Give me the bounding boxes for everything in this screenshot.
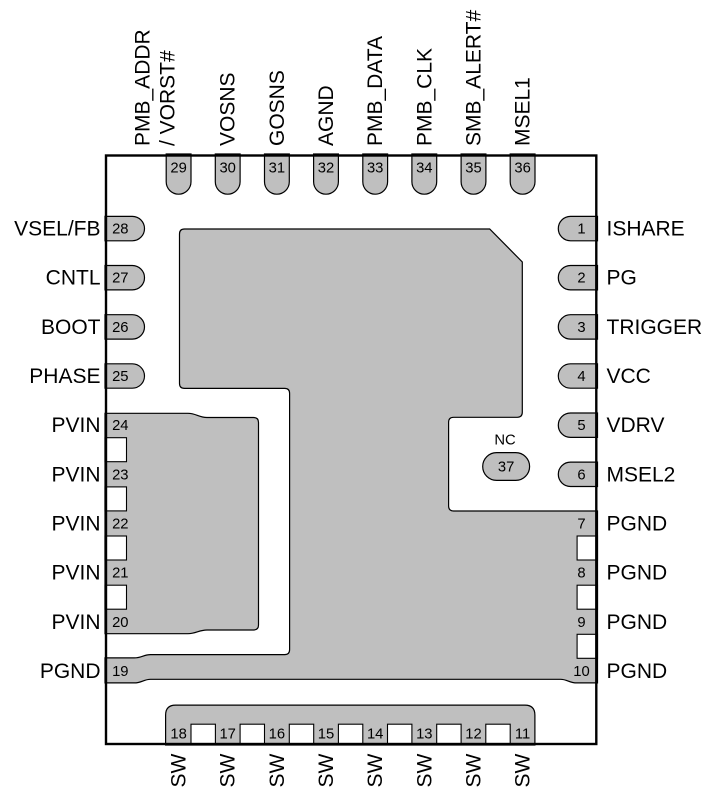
svg-text:PMB_CLK: PMB_CLK xyxy=(413,48,436,146)
svg-text:VSEL/FB: VSEL/FB xyxy=(14,218,100,241)
svg-text:PGND: PGND xyxy=(607,611,668,634)
svg-text:SMB_ALERT#: SMB_ALERT# xyxy=(463,10,486,146)
svg-text:MSEL2: MSEL2 xyxy=(607,463,676,486)
svg-text:32: 32 xyxy=(318,161,334,177)
svg-text:16: 16 xyxy=(269,726,285,742)
svg-text:35: 35 xyxy=(465,161,481,177)
svg-text:ISHARE: ISHARE xyxy=(607,218,685,241)
svg-text:25: 25 xyxy=(112,369,128,385)
svg-text:8: 8 xyxy=(577,566,585,582)
svg-text:/ VORST#: / VORST# xyxy=(157,50,180,146)
svg-text:PMB_DATA: PMB_DATA xyxy=(364,36,387,146)
svg-text:VCC: VCC xyxy=(607,365,651,388)
svg-text:6: 6 xyxy=(577,467,585,483)
svg-text:CNTL: CNTL xyxy=(46,267,101,290)
svg-text:34: 34 xyxy=(416,161,432,177)
svg-text:14: 14 xyxy=(367,726,383,742)
svg-text:27: 27 xyxy=(112,271,128,287)
svg-text:BOOT: BOOT xyxy=(41,316,101,339)
svg-text:PGND: PGND xyxy=(607,660,668,683)
svg-text:5: 5 xyxy=(577,418,585,434)
svg-text:SW: SW xyxy=(512,753,535,787)
svg-text:13: 13 xyxy=(416,726,432,742)
svg-text:36: 36 xyxy=(514,161,530,177)
svg-text:SW: SW xyxy=(315,753,338,787)
svg-text:PVIN: PVIN xyxy=(51,611,100,634)
svg-text:TRIGGER: TRIGGER xyxy=(607,316,703,339)
svg-text:PGND: PGND xyxy=(607,562,668,585)
svg-text:11: 11 xyxy=(515,726,530,742)
svg-text:PVIN: PVIN xyxy=(51,562,100,585)
svg-text:18: 18 xyxy=(170,726,186,742)
svg-text:15: 15 xyxy=(318,726,334,742)
svg-text:SW: SW xyxy=(463,753,486,787)
svg-text:1: 1 xyxy=(577,222,585,238)
svg-text:23: 23 xyxy=(112,467,128,483)
svg-text:SW: SW xyxy=(168,753,191,787)
svg-text:GOSNS: GOSNS xyxy=(266,70,289,146)
svg-text:9: 9 xyxy=(577,615,585,631)
svg-text:30: 30 xyxy=(219,161,235,177)
svg-text:SW: SW xyxy=(364,753,387,787)
svg-text:PGND: PGND xyxy=(40,660,101,683)
svg-text:31: 31 xyxy=(269,161,285,177)
svg-text:PVIN: PVIN xyxy=(51,513,100,536)
svg-text:VOSNS: VOSNS xyxy=(217,72,240,146)
svg-text:17: 17 xyxy=(219,726,235,742)
svg-text:AGND: AGND xyxy=(315,85,338,146)
svg-text:SW: SW xyxy=(413,753,436,787)
svg-text:24: 24 xyxy=(112,418,128,434)
svg-text:PHASE: PHASE xyxy=(29,365,100,388)
svg-text:26: 26 xyxy=(112,320,128,336)
svg-text:7: 7 xyxy=(577,517,585,533)
svg-text:2: 2 xyxy=(577,271,585,287)
svg-text:37: 37 xyxy=(498,460,514,476)
svg-text:22: 22 xyxy=(112,517,128,533)
svg-text:28: 28 xyxy=(112,222,128,238)
svg-text:29: 29 xyxy=(170,161,186,177)
svg-text:PMB_ADDR: PMB_ADDR xyxy=(132,29,155,146)
svg-text:12: 12 xyxy=(465,726,481,742)
svg-text:19: 19 xyxy=(112,664,128,680)
svg-text:10: 10 xyxy=(573,664,589,680)
svg-text:3: 3 xyxy=(577,320,585,336)
svg-text:4: 4 xyxy=(577,369,585,385)
svg-text:PVIN: PVIN xyxy=(51,414,100,437)
svg-text:SW: SW xyxy=(266,753,289,787)
svg-text:VDRV: VDRV xyxy=(607,414,665,437)
svg-text:PVIN: PVIN xyxy=(51,463,100,486)
svg-text:NC: NC xyxy=(494,433,516,449)
svg-text:33: 33 xyxy=(367,161,383,177)
svg-text:MSEL1: MSEL1 xyxy=(512,77,535,146)
svg-text:20: 20 xyxy=(112,615,128,631)
svg-text:21: 21 xyxy=(112,566,128,582)
svg-text:SW: SW xyxy=(217,753,240,787)
svg-text:PG: PG xyxy=(607,267,637,290)
svg-text:PGND: PGND xyxy=(607,513,668,536)
